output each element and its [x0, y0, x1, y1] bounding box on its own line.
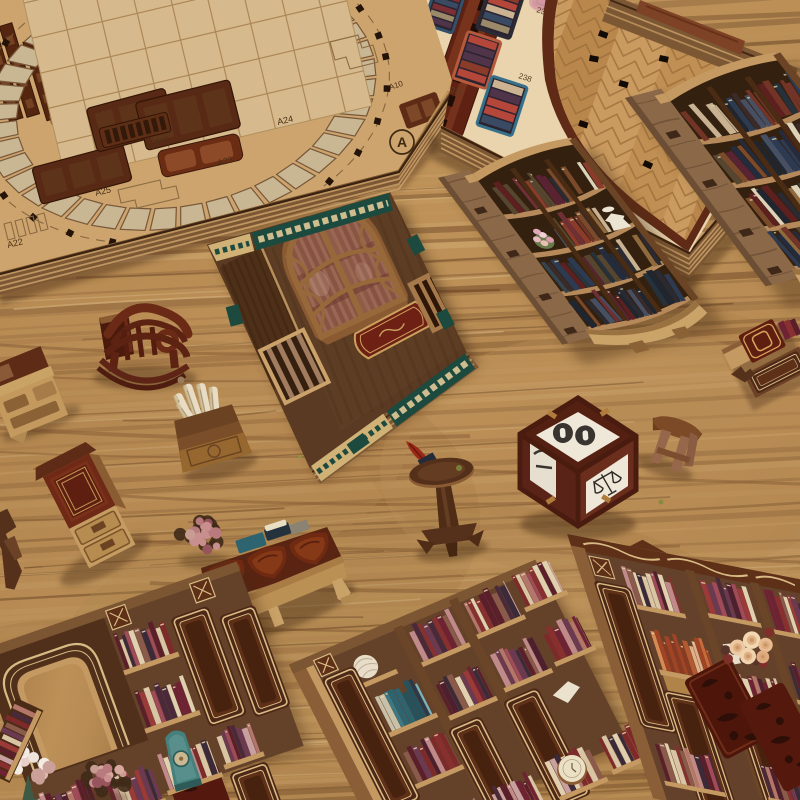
svg-text:A: A — [397, 134, 407, 150]
